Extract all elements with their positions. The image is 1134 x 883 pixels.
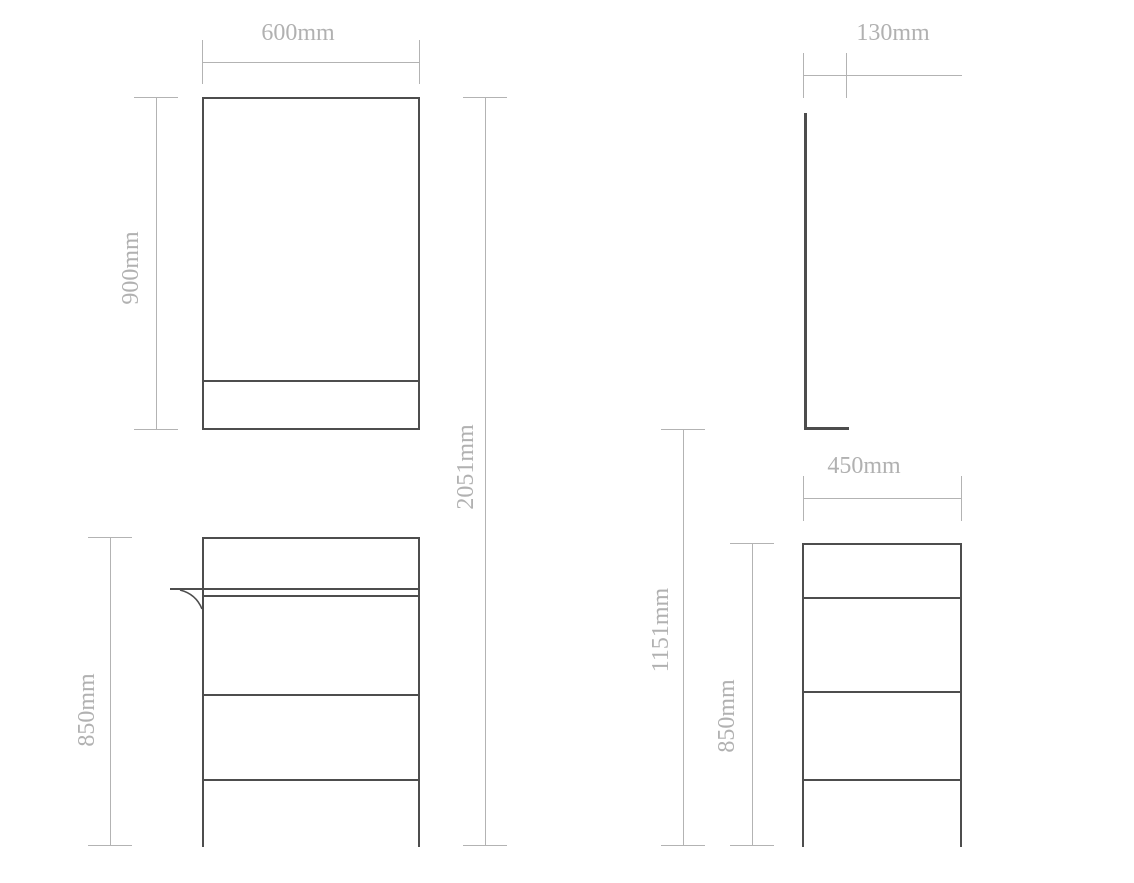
cabinet-front-divider-1 bbox=[202, 694, 420, 696]
dim-tick-cabinet-height-front-bottom bbox=[88, 845, 132, 846]
dim-tick-cabinet-depth-left bbox=[803, 476, 804, 521]
dim-tick-mirror-to-floor-bottom bbox=[661, 845, 705, 846]
dim-label-mirror-width: 600mm bbox=[261, 21, 334, 45]
dim-line-overall-height bbox=[485, 97, 486, 846]
cabinet-side-left-side bbox=[802, 543, 804, 847]
dim-tick-mirror-depth-left bbox=[803, 53, 804, 98]
countertop-underside-line bbox=[202, 595, 420, 597]
dim-line-cabinet-height-side bbox=[752, 543, 753, 846]
dim-tick-cabinet-height-side-top bbox=[730, 543, 774, 544]
dim-tick-cabinet-depth-right bbox=[961, 476, 962, 521]
dim-label-mirror-to-floor: 1151mm bbox=[649, 588, 673, 672]
dim-label-overall-height: 2051mm bbox=[454, 424, 478, 509]
cabinet-side-right-side bbox=[960, 543, 962, 847]
cabinet-side-top-edge bbox=[802, 543, 962, 545]
cabinet-side-divider-2 bbox=[802, 691, 962, 693]
dim-line-cabinet-height-front bbox=[110, 537, 111, 846]
dim-line-mirror-depth bbox=[803, 75, 962, 76]
cabinet-front-divider-2 bbox=[202, 779, 420, 781]
dim-label-mirror-depth: 130mm bbox=[856, 21, 929, 45]
dim-tick-cabinet-height-front-top bbox=[88, 537, 132, 538]
cabinet-front-left-side bbox=[202, 537, 204, 847]
mirror-side-panel-line bbox=[804, 113, 807, 430]
dim-label-mirror-height: 900mm bbox=[119, 231, 143, 304]
cabinet-side-divider-3 bbox=[802, 779, 962, 781]
cabinet-front-top-edge bbox=[202, 537, 420, 539]
dim-tick-mirror-height-top bbox=[134, 97, 178, 98]
dim-line-cabinet-depth bbox=[803, 498, 962, 499]
technical-drawing-canvas: 600mm 900mm 2051mm 850mm 130mm bbox=[0, 0, 1134, 883]
dim-label-cabinet-depth: 450mm bbox=[827, 454, 900, 478]
countertop-edge-curve bbox=[170, 585, 210, 615]
dim-tick-overall-height-top bbox=[463, 97, 507, 98]
dim-tick-mirror-height-bottom bbox=[134, 429, 178, 430]
dim-line-mirror-height bbox=[156, 97, 157, 430]
mirror-front-bottom-shelf-line bbox=[202, 380, 420, 382]
dim-label-cabinet-height-front: 850mm bbox=[75, 673, 99, 746]
mirror-side-bottom-shelf-line bbox=[804, 427, 849, 430]
dim-tick-mirror-width-right bbox=[419, 40, 420, 84]
dim-tick-overall-height-bottom bbox=[463, 845, 507, 846]
dim-tick-mirror-depth-right bbox=[846, 53, 847, 98]
dim-line-mirror-to-floor bbox=[683, 429, 684, 846]
dim-line-mirror-width bbox=[202, 62, 420, 63]
cabinet-side-divider-1 bbox=[802, 597, 962, 599]
dim-tick-mirror-to-floor-top bbox=[661, 429, 705, 430]
dim-label-cabinet-height-side: 850mm bbox=[715, 679, 739, 752]
dim-tick-cabinet-height-side-bottom bbox=[730, 845, 774, 846]
dim-tick-mirror-width-left bbox=[202, 40, 203, 84]
cabinet-front-right-side bbox=[418, 537, 420, 847]
